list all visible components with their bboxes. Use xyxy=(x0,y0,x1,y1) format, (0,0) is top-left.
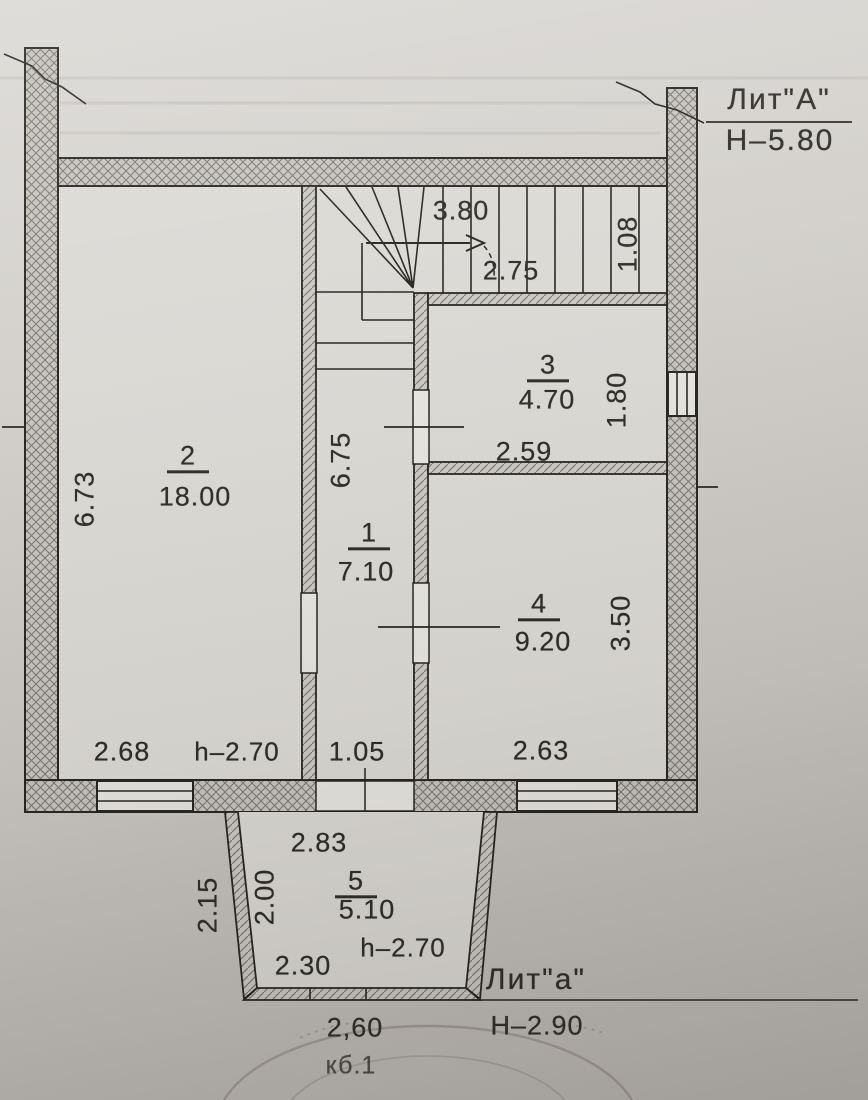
floor-plan-scan: Лит"А" Н–5.80 3.80 2.75 1.08 3 4.70 1.80… xyxy=(0,0,868,1100)
wall-corridor-left xyxy=(302,186,316,780)
stairs-dim-width: 1.08 xyxy=(613,216,644,273)
annex-lit-label: Лит"а" xyxy=(486,963,586,997)
wall-top xyxy=(58,158,667,186)
window-bottom-right xyxy=(517,781,617,811)
room-3-dim-side: 1.80 xyxy=(602,372,633,429)
room-1-area: 7.10 xyxy=(338,557,395,588)
room-5-dim-outer: 2.15 xyxy=(193,877,224,934)
room-4-dim-side: 3.50 xyxy=(606,595,637,652)
room-5-dim-inner: 2.00 xyxy=(250,869,281,926)
room-4-number-text: 4 xyxy=(518,589,560,621)
room-5-area: 5.10 xyxy=(339,895,396,926)
room-2-dim-side: 6.73 xyxy=(70,471,101,528)
stairs-dim-top: 3.80 xyxy=(433,196,490,227)
annex-wall-bottom xyxy=(244,988,480,1000)
main-building xyxy=(2,48,852,826)
room-2-number: 2 xyxy=(167,440,209,473)
building-lit-label: Лит"А" xyxy=(727,83,831,117)
annex-note-label: кб.1 xyxy=(326,1052,377,1081)
room-2-number-text: 2 xyxy=(167,441,209,473)
room-2-dim-bottom: 2.68 xyxy=(94,737,151,768)
room-1-dim-bottom: 1.05 xyxy=(329,737,386,768)
room-3-area: 4.70 xyxy=(519,385,576,416)
annex-width-label: 2,60 xyxy=(327,1013,384,1044)
window-right-wall xyxy=(668,372,696,416)
break-lines xyxy=(4,54,704,123)
annex-height-label: Н–2.90 xyxy=(490,1011,583,1042)
room-4-number: 4 xyxy=(518,588,560,621)
room-3-number-text: 3 xyxy=(527,350,569,382)
room-5-dim-bottom: 2.30 xyxy=(275,951,332,982)
room-3-number: 3 xyxy=(527,349,569,382)
wall-left xyxy=(25,48,58,812)
door-room2-corridor xyxy=(301,593,317,673)
window-bottom-left xyxy=(97,781,193,811)
room-2-area: 18.00 xyxy=(159,482,232,513)
room-1-number-text: 1 xyxy=(348,518,390,550)
room-2-ceiling-height: h–2.70 xyxy=(194,737,280,768)
wall-room3-top xyxy=(428,293,667,305)
room-1-number: 1 xyxy=(348,517,390,550)
stairs-dim-bottom: 2.75 xyxy=(483,256,540,287)
wall-corridor-right xyxy=(414,293,428,780)
room-5-dim-top: 2.83 xyxy=(291,828,348,859)
wall-right xyxy=(667,88,697,812)
building-height-label: Н–5.80 xyxy=(726,124,835,158)
room-5-ceiling-height: h–2.70 xyxy=(360,933,446,964)
door-room4-corridor xyxy=(413,583,429,663)
room-3-dim-bottom: 2.59 xyxy=(496,437,553,468)
room-4-dim-bottom: 2.63 xyxy=(513,736,570,767)
room-4-area: 9.20 xyxy=(515,627,572,658)
room-1-dim-side: 6.75 xyxy=(326,432,357,489)
